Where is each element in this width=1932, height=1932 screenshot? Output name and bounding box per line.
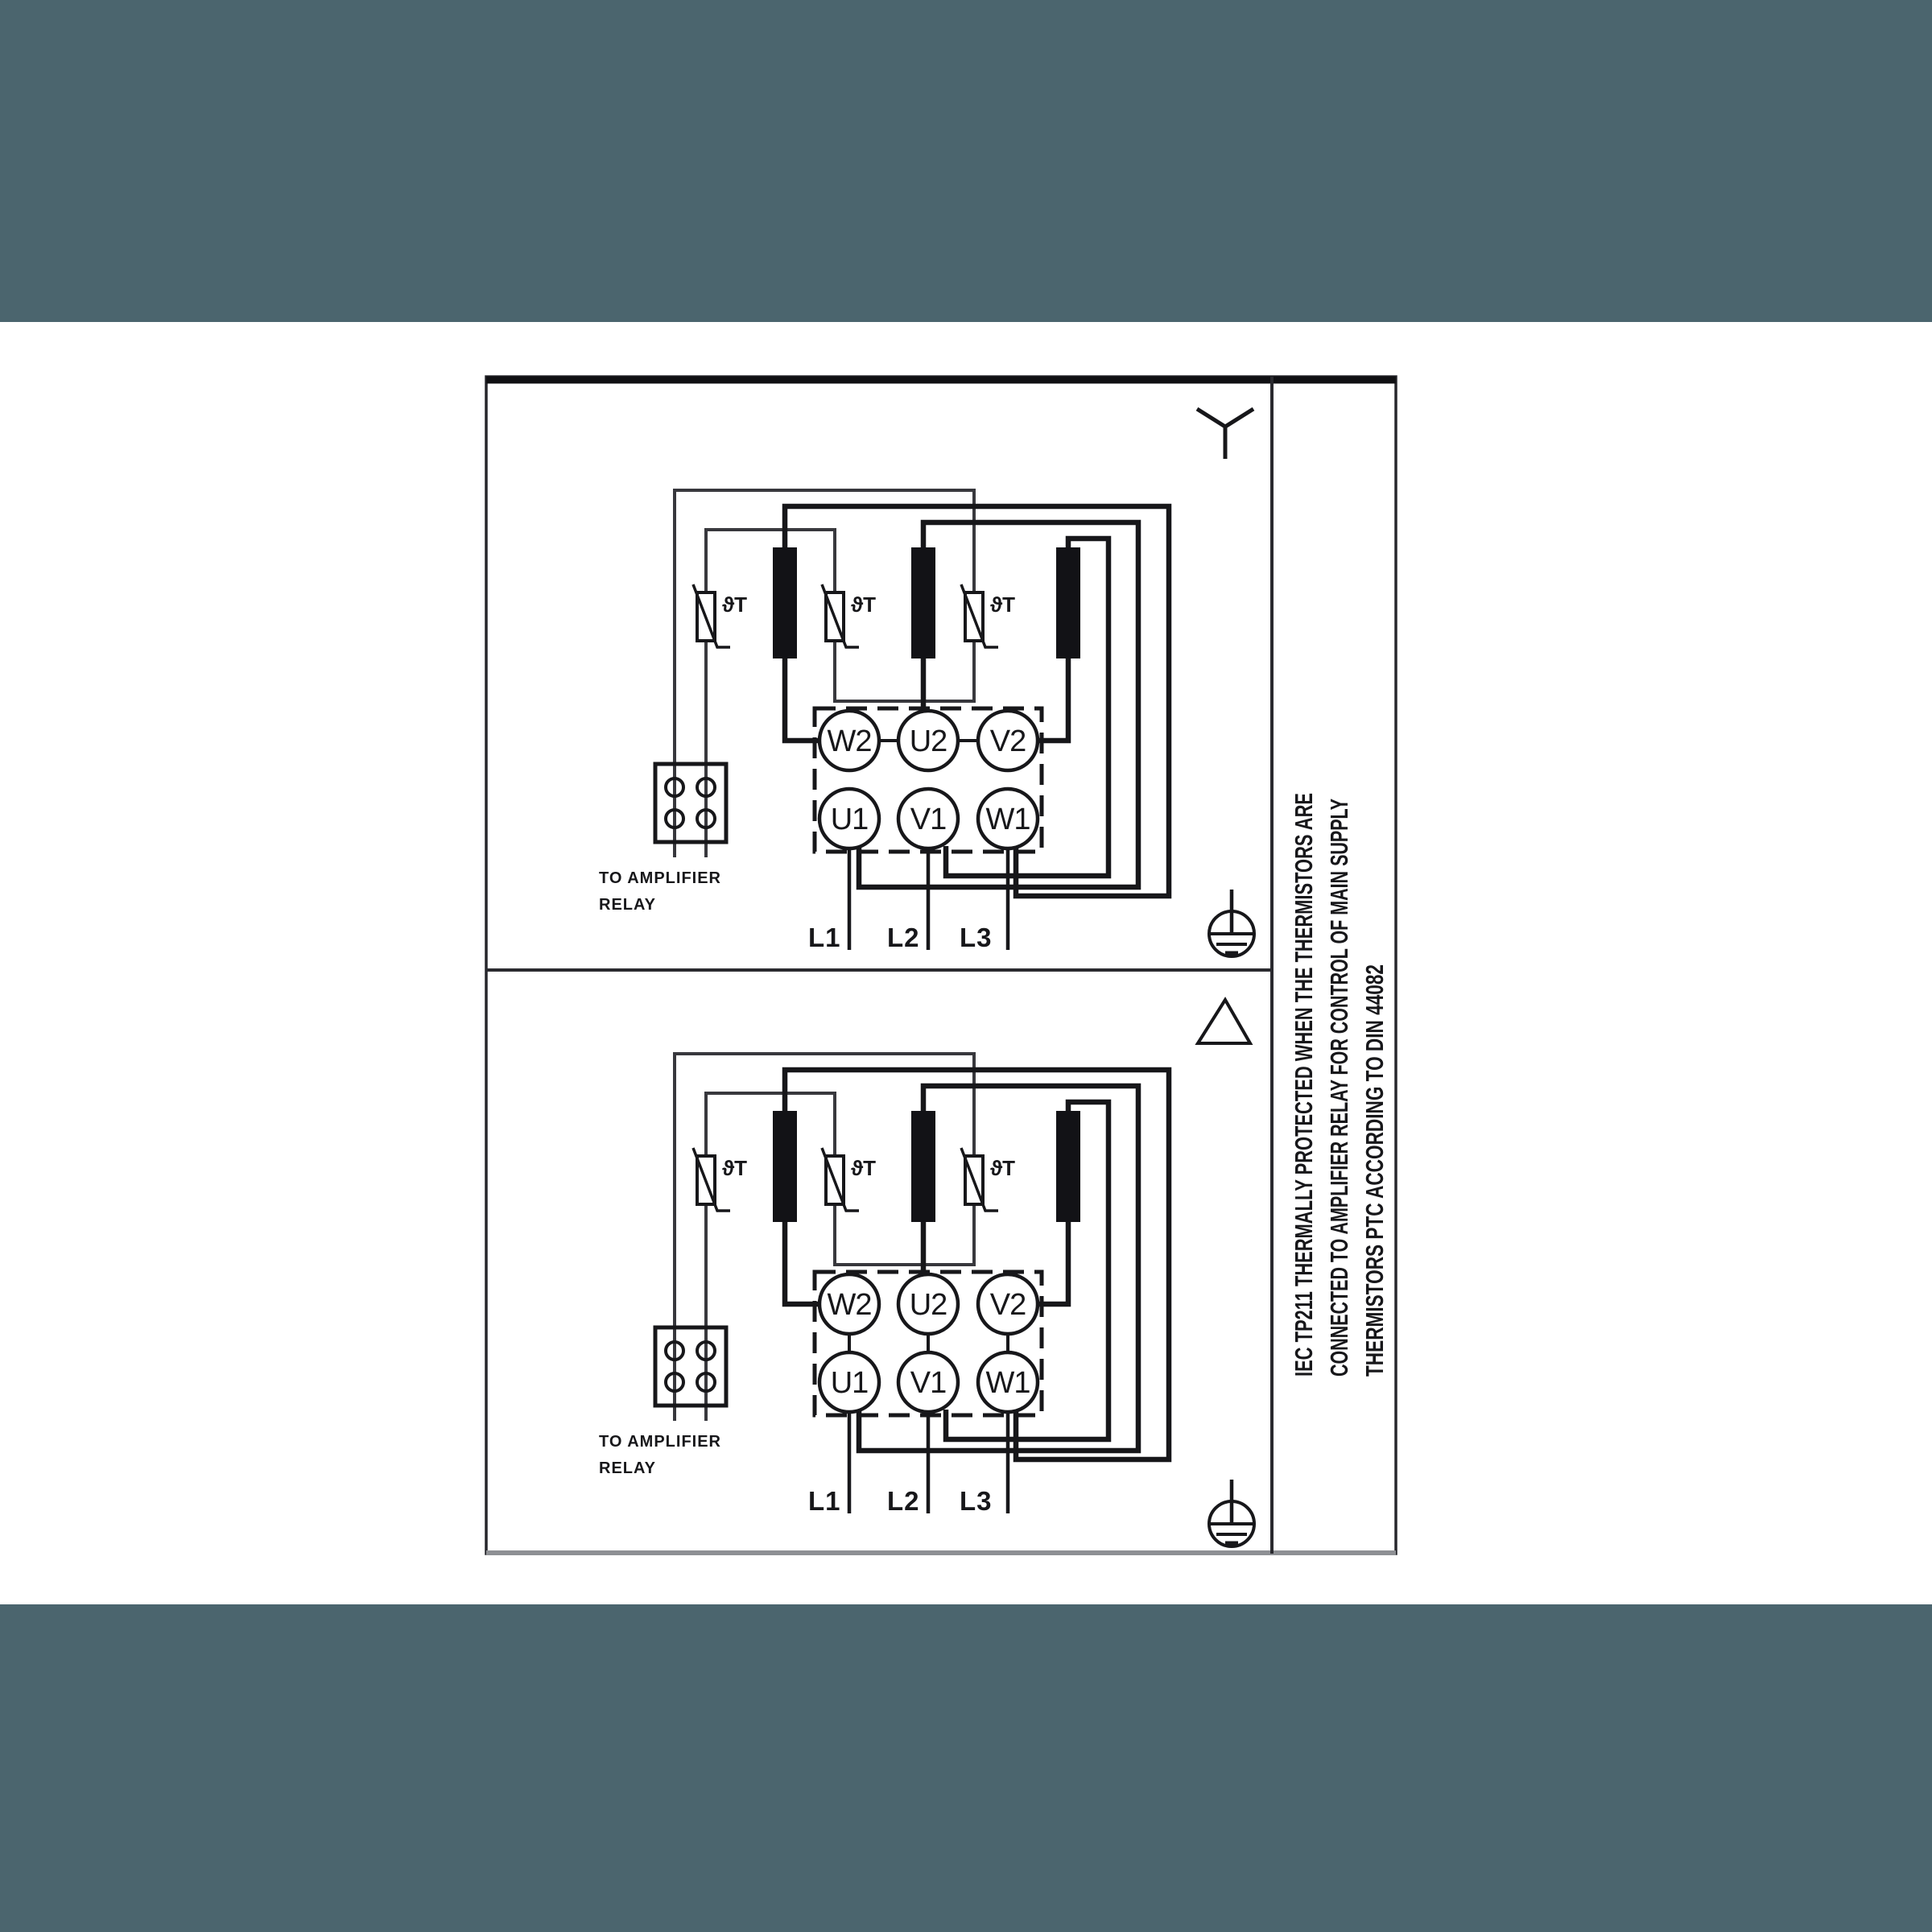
terminal-label: U2 xyxy=(910,1288,947,1322)
top-band xyxy=(0,0,1932,322)
supply-label-L3: L3 xyxy=(960,923,993,952)
winding-bar-3 xyxy=(1056,1111,1080,1222)
winding-bar-1 xyxy=(773,547,797,658)
relay-caption-line2: RELAY xyxy=(599,896,656,914)
terminal-V2: V2 xyxy=(978,1274,1038,1334)
terminal-label: V1 xyxy=(910,1366,946,1400)
terminal-U1: U1 xyxy=(819,789,879,848)
terminal-label: W1 xyxy=(986,803,1030,836)
thermistor-label: ϑT xyxy=(851,1156,876,1180)
winding-bar-2 xyxy=(911,547,935,658)
terminal-label: W2 xyxy=(828,1288,872,1322)
note-line: CONNECTED TO AMPLIFIER RELAY FOR CONTROL… xyxy=(1325,799,1353,1377)
winding-bar-3 xyxy=(1056,547,1080,658)
terminal-U2: U2 xyxy=(898,711,958,770)
terminal-label: W2 xyxy=(828,724,872,758)
terminal-label: V2 xyxy=(990,724,1026,758)
relay-caption-line1: TO AMPLIFIER xyxy=(599,1433,721,1451)
thermistor-label: ϑT xyxy=(990,1156,1015,1180)
thermistor-label: ϑT xyxy=(851,592,876,617)
terminal-V1: V1 xyxy=(898,1352,958,1412)
terminal-label: U2 xyxy=(910,724,947,758)
thermistor-label: ϑT xyxy=(722,592,747,617)
terminal-label: W1 xyxy=(986,1366,1030,1400)
supply-label-L3: L3 xyxy=(960,1486,993,1516)
terminal-U2: U2 xyxy=(898,1274,958,1334)
terminal-W1: W1 xyxy=(978,1352,1038,1412)
wiring-diagram-page: ϑTϑTϑTW2U2V2U1V1W1TO AMPLIFIERRELAYL1L2L… xyxy=(0,0,1932,1932)
supply-label-L1: L1 xyxy=(808,923,841,952)
winding-bar-1 xyxy=(773,1111,797,1222)
terminal-V2: V2 xyxy=(978,711,1038,770)
relay-caption-line2: RELAY xyxy=(599,1459,656,1477)
terminal-U1: U1 xyxy=(819,1352,879,1412)
supply-label-L1: L1 xyxy=(808,1486,841,1516)
terminal-W2: W2 xyxy=(819,711,879,770)
terminal-V1: V1 xyxy=(898,789,958,848)
terminal-label: V1 xyxy=(910,803,946,836)
supply-label-L2: L2 xyxy=(887,923,920,952)
terminal-W1: W1 xyxy=(978,789,1038,848)
note-line: THERMISTORS PTC ACCORDING TO DIN 44082 xyxy=(1360,964,1389,1377)
supply-label-L2: L2 xyxy=(887,1486,920,1516)
bottom-band xyxy=(0,1604,1932,1932)
thermistor-label: ϑT xyxy=(990,592,1015,617)
terminal-label: U1 xyxy=(831,1366,869,1400)
terminal-label: U1 xyxy=(831,803,869,836)
relay-caption-line1: TO AMPLIFIER xyxy=(599,869,721,887)
terminal-W2: W2 xyxy=(819,1274,879,1334)
thermistor-label: ϑT xyxy=(722,1156,747,1180)
note-line: IEC TP211 THERMALLY PROTECTED WHEN THE T… xyxy=(1290,793,1318,1377)
winding-bar-2 xyxy=(911,1111,935,1222)
terminal-label: V2 xyxy=(990,1288,1026,1322)
